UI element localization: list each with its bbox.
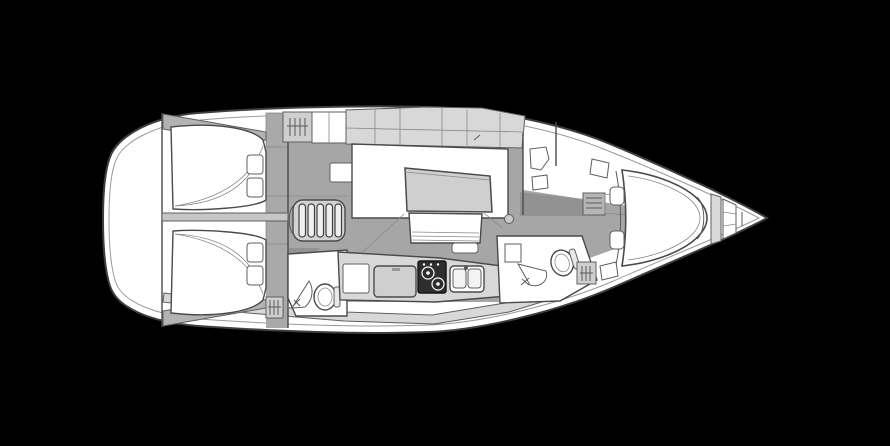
berth-side-pad-1 <box>610 187 624 205</box>
fridge-handle <box>392 268 400 271</box>
galley-locker <box>343 264 369 293</box>
galley-faucet-icon <box>464 266 468 270</box>
stove-knob-2 <box>430 263 432 265</box>
side-bench-port <box>590 159 609 178</box>
footrest <box>452 243 478 253</box>
wardrobe-shape-2 <box>532 175 548 190</box>
companionway-step-4 <box>326 204 333 237</box>
companionway-step-3 <box>317 204 324 237</box>
aft-cabins <box>162 112 288 328</box>
lockers-strip-body <box>346 107 525 148</box>
wet-locker <box>283 112 312 142</box>
table-leg-mount <box>505 215 514 224</box>
stove-burner-2-center <box>436 282 440 286</box>
yacht-layout-screenshot <box>0 0 890 446</box>
anchor-locker-outer <box>711 194 721 244</box>
port-lockers-strip <box>346 107 525 148</box>
aft-cabin-divider <box>162 213 288 221</box>
companionway-step-1 <box>299 204 306 237</box>
shelf-unit <box>583 193 605 215</box>
port-berth-pillow-2 <box>247 178 263 197</box>
anchor-locker-inner <box>723 199 736 239</box>
companionway-step-2 <box>308 204 315 237</box>
stove-burner-1-center <box>426 271 430 275</box>
port-berth-pillow-1 <box>247 155 263 174</box>
salon-bench <box>409 213 482 243</box>
salon-table <box>405 168 492 212</box>
sink-basin-2 <box>468 269 481 288</box>
stove-knob-3 <box>437 263 439 265</box>
companionway-step-5 <box>335 204 342 237</box>
starboard-berth-pillow-2 <box>247 266 263 285</box>
berth-side-pad-2 <box>610 231 624 249</box>
starboard-berth-pillow-1 <box>247 243 263 262</box>
stove-knob-1 <box>423 263 425 265</box>
forward-head-cabinet <box>505 244 521 262</box>
yacht-layout-diagram <box>0 0 890 446</box>
sink-basin-1 <box>453 269 466 288</box>
